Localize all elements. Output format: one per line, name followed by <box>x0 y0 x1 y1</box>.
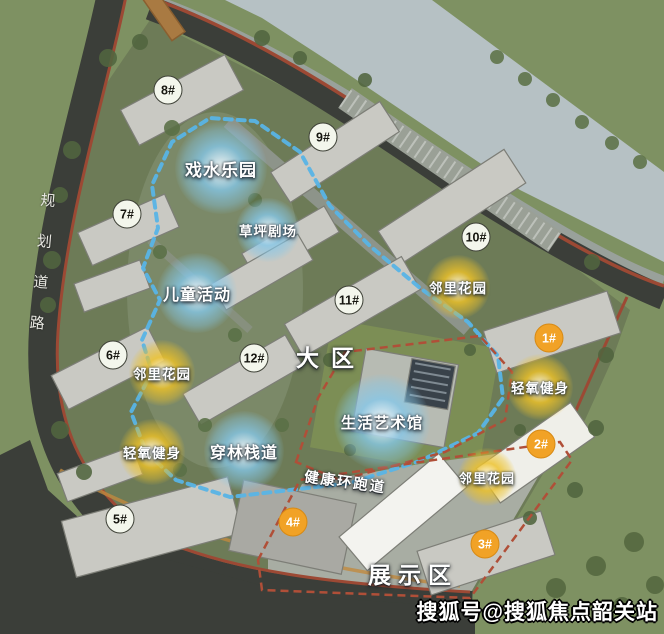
art-museum-building <box>351 348 458 447</box>
base-map <box>0 0 664 634</box>
site-plan-map: 戏水乐园草坪剧场儿童活动穿林栈道生活艺术馆邻里花园邻里花园邻里花园轻氧健身轻氧健… <box>0 0 664 634</box>
